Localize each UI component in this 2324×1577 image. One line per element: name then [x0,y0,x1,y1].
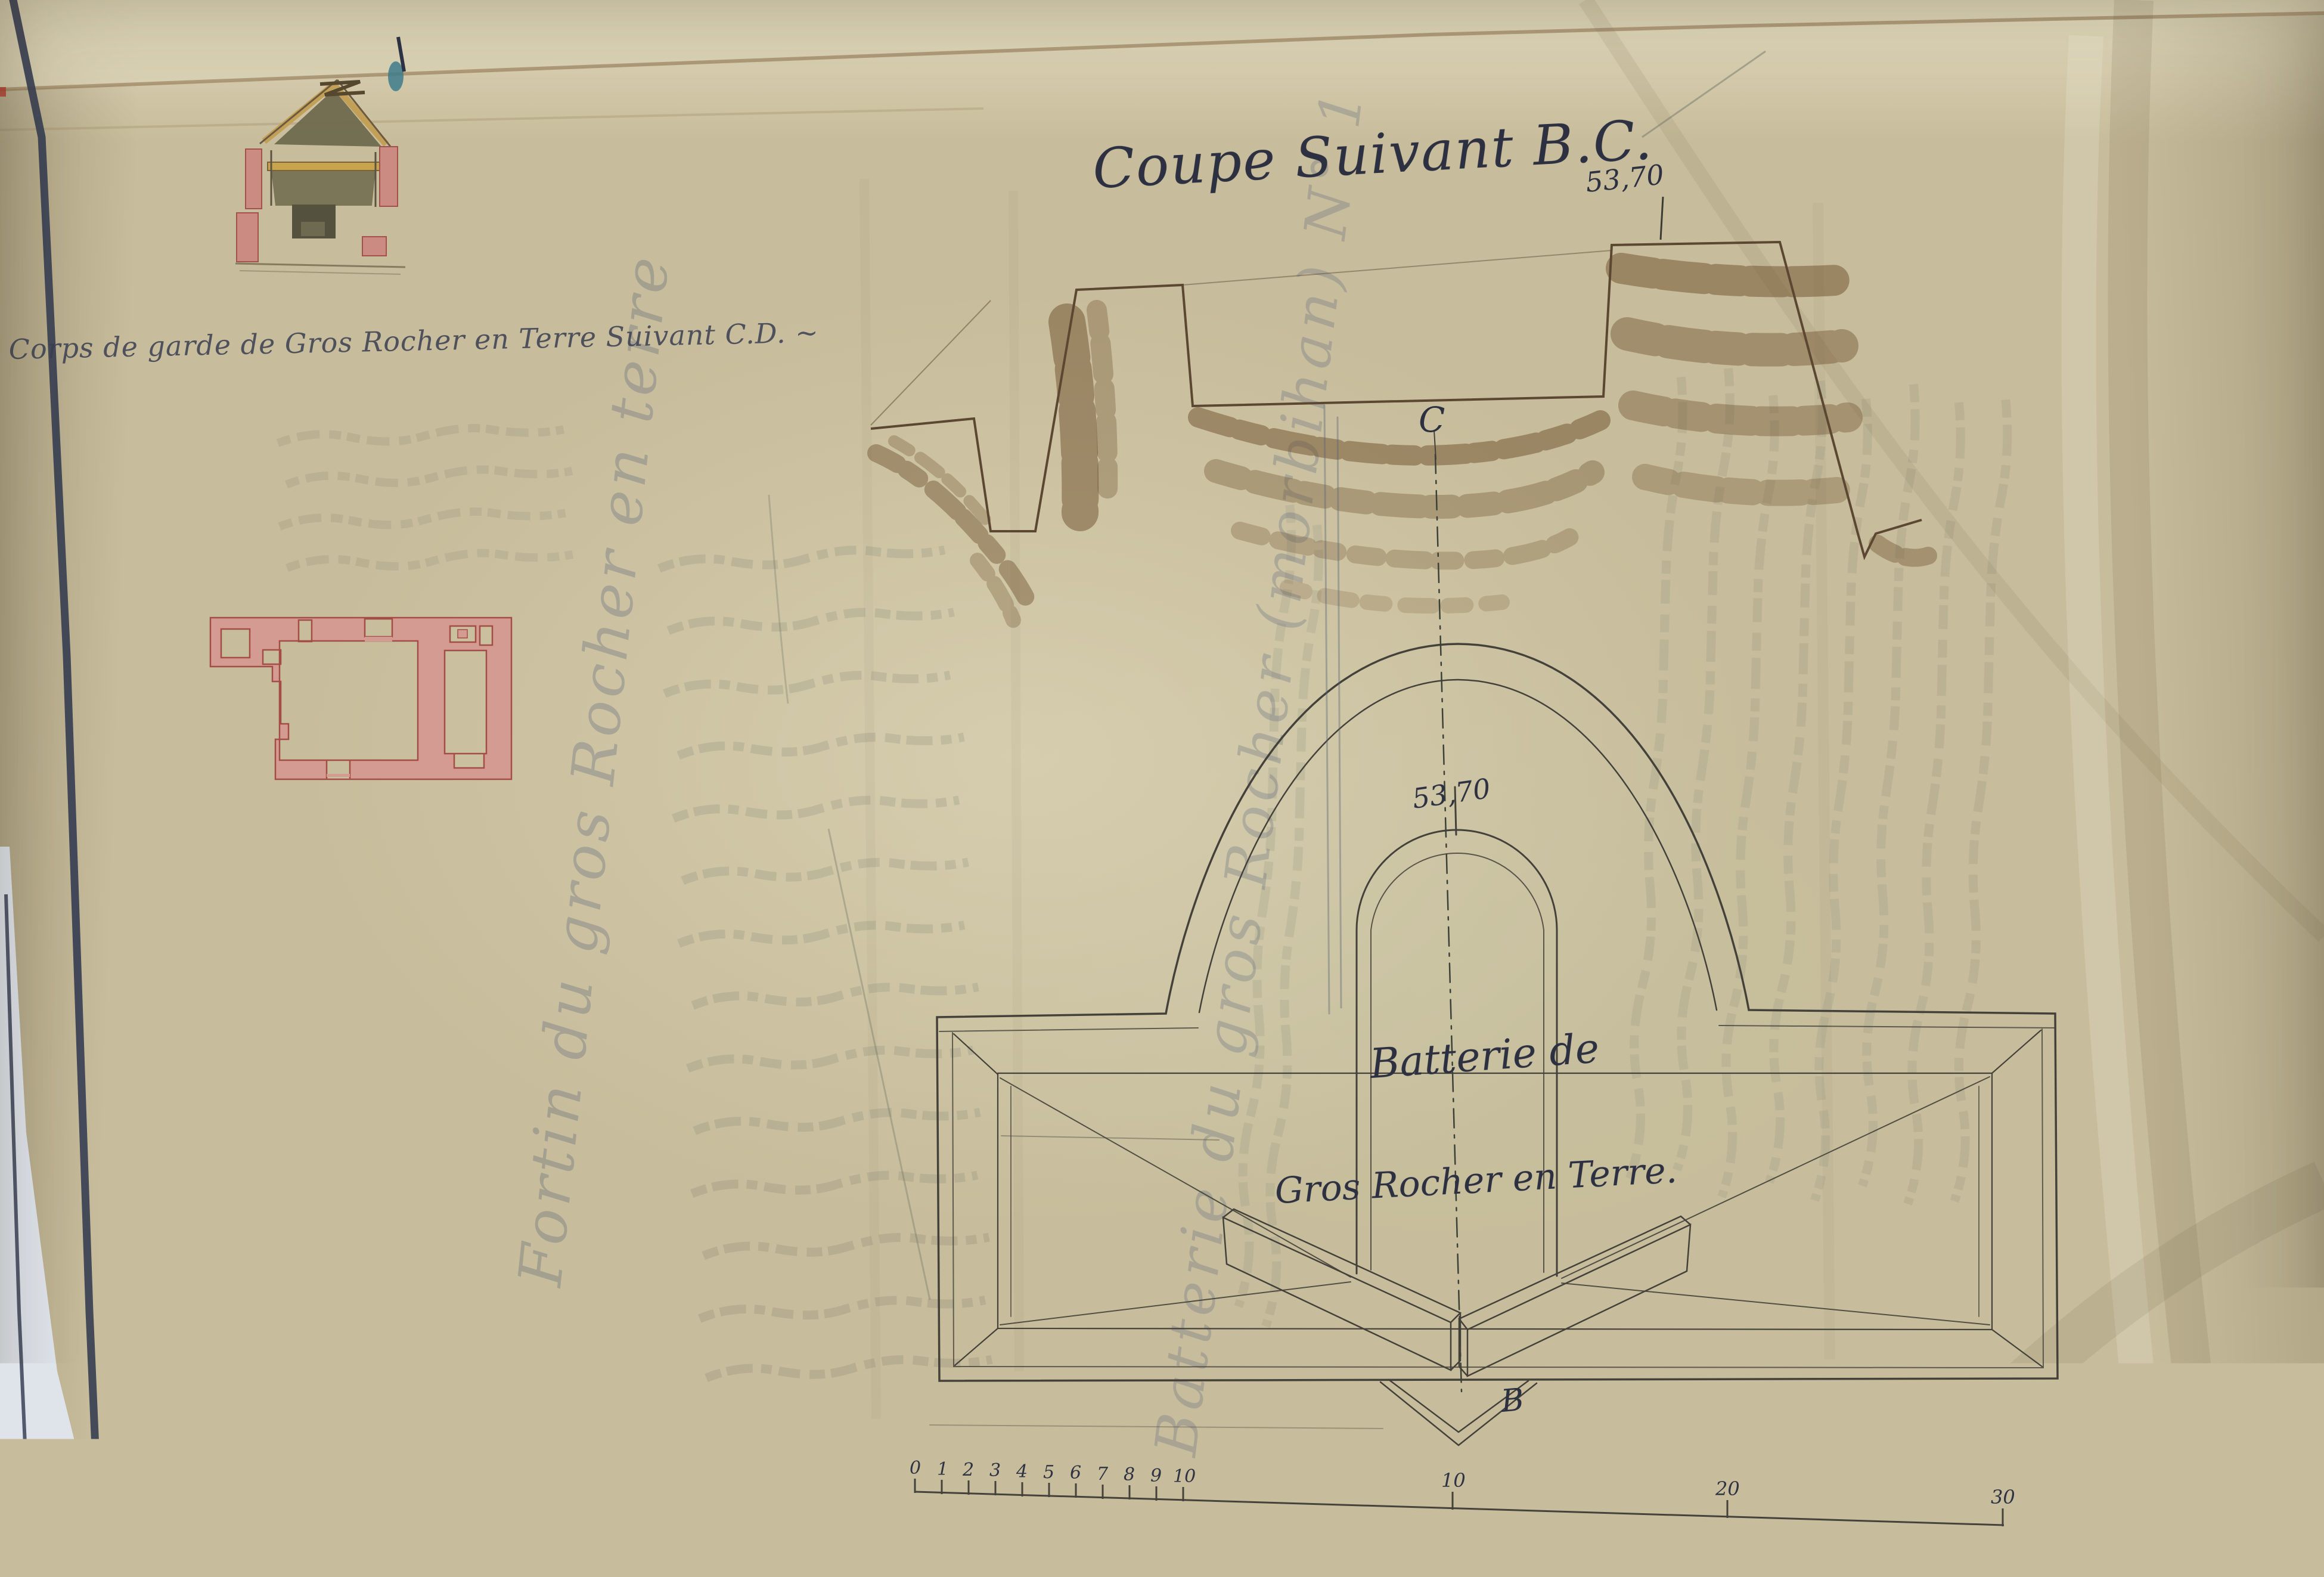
ghost-column [1948,399,2018,1201]
ghost-handwriting-upperleft-block [277,425,576,571]
red-edge-mark [0,87,6,97]
scale-number: 30 [1991,1486,2015,1508]
scale-number: 2 [962,1460,974,1480]
scale-caption: Echelle de cinq Millimètres pour Mètre. [1134,1402,1814,1458]
backing-strip: H 5746 [0,847,108,1577]
elevation-tick [1661,197,1663,240]
earth-blotches [1621,268,1836,282]
plan-walls [210,618,511,779]
scale-number: 1 [937,1459,948,1480]
ghost-line [278,425,564,445]
earth-blotches [1067,322,1080,513]
guardhouse-section-drawing [235,80,405,274]
pink-wall-left [246,149,262,209]
ghost-line [668,608,954,633]
earth-blotches [1627,334,1842,350]
shoulder-double-lines [939,1025,2054,1031]
scale-number: 4 [1016,1461,1028,1482]
interior-shadow [271,170,376,206]
left-traverse-ramp [1223,1209,1460,1370]
ghost-line [286,466,572,487]
ghost-vertical-title: Fortin du gros Rocher en terre [505,250,682,1291]
pink-footing-right [362,237,386,256]
ghost-line [673,795,959,821]
scale-number: 20 [1715,1477,1740,1500]
scale-number: 5 [1043,1462,1054,1483]
battery-label-line1: Batterie de [1367,1025,1601,1088]
bottom-right-curl-shadow [1848,1183,2324,1577]
ghost-line [703,1232,989,1258]
fireplace-opening [301,222,325,236]
ghost-diagonal-title: Batterie du gros Rocher (morbihan) N° 1 [1142,83,1376,1460]
archival-drawing-photograph: H 5746 [0,0,2324,1577]
blue-paint-mark [388,61,404,91]
ghost-line [693,983,979,1008]
earth-blotches [1645,477,1848,493]
scale-number: 10 [1173,1466,1196,1487]
construction-line [871,300,991,425]
axis-point-top: C [1419,399,1445,440]
border-bottom [99,1530,2324,1569]
scale-minor-labels: 0 1 2 3 4 5 6 7 8 9 10 [910,1458,1196,1487]
ground-line [235,264,405,267]
earth-blotches [1198,417,1600,456]
pencil-long-curve [829,829,930,1300]
battery-label-line2: Gros Rocher en Terre. [1274,1150,1678,1212]
ghost-line [706,1355,992,1380]
door-sill-bottom [327,774,350,777]
pencil-stray-line [1642,51,1766,137]
ghost-line [287,550,573,570]
terreplein-rectangle [998,1073,1992,1330]
plan-elevation-label: 53,70 [1410,772,1493,815]
scale-number: 3 [989,1460,1001,1481]
ghost-line [659,546,945,571]
earth-blotches [1097,310,1107,495]
guardhouse-caption: Corps de garde de Gros Rocher en Terre S… [8,317,819,365]
ghost-line [678,732,964,758]
scale-number: 10 [1441,1469,1466,1492]
pink-footing-left [237,213,258,262]
pink-wall-right [380,147,398,206]
guardhouse-plan-drawing [210,618,511,779]
scale-number: 9 [1150,1466,1162,1486]
scale-number: 0 [910,1458,921,1479]
tie-beam [268,162,386,171]
chimney-flue [458,630,467,638]
ground-line-2 [240,271,401,274]
secondary-crease [0,109,983,130]
coupe-section-drawing: 53,70 [871,158,1928,620]
center-axis-dashed [1435,454,1462,1392]
ghost-line [699,1296,985,1321]
vertical-streak [1013,191,1019,1371]
right-traverse-ramp [1459,1216,1690,1376]
earth-blotches [876,453,1028,602]
scale-bar: 0 1 2 3 4 5 6 7 8 9 10 10 20 30 Echelle … [910,1402,2015,1526]
ghost-line [280,509,566,529]
ghost-line [687,1045,973,1071]
scale-number: 8 [1124,1464,1135,1485]
ramp-slope-diagonals [1000,1077,1990,1325]
scale-number: 6 [1070,1463,1081,1483]
ghost-handwriting-left-block [657,545,998,1381]
construction-line [1183,250,1612,285]
door-sill-top [365,637,392,642]
scale-number: 7 [1097,1464,1109,1485]
ghost-line [691,1170,978,1196]
earth-blotches [894,441,989,525]
ghost-line [682,857,969,883]
scale-baseline [915,1492,2004,1525]
ghost-line [678,921,964,946]
pencil-long-curve [769,495,788,704]
earth-blotches [1633,405,1848,422]
ghost-line [664,670,950,696]
